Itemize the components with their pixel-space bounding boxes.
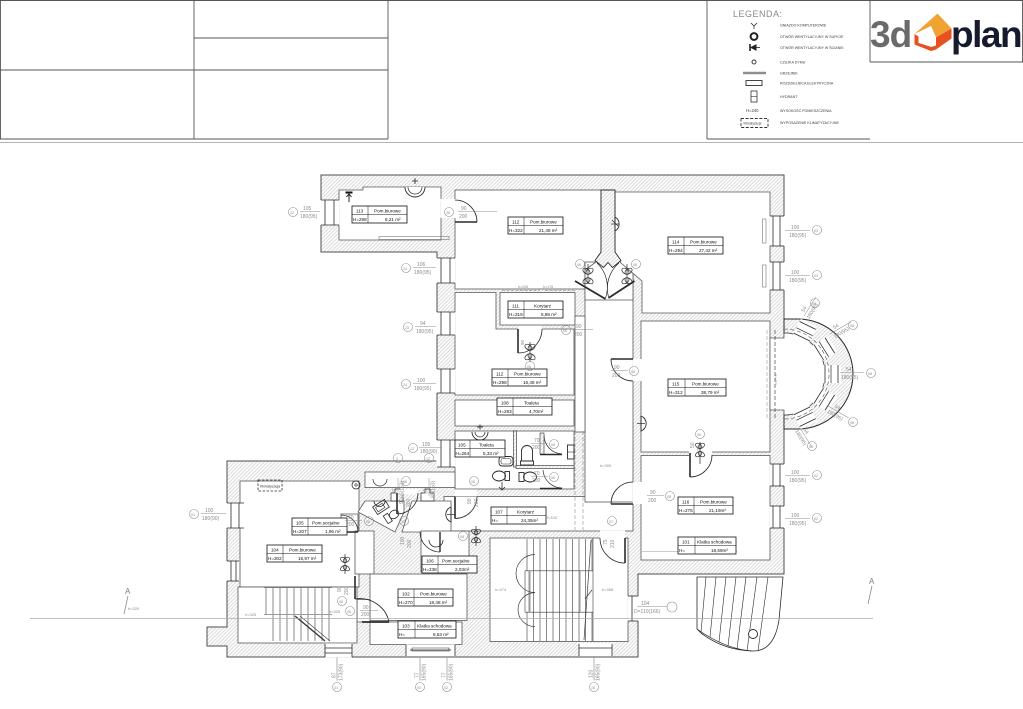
svg-text:GRZEJNIK: GRZEJNIK [780,72,798,76]
svg-text:H=207: H=207 [293,529,307,534]
svg-text:08: 08 [850,324,854,328]
svg-text:8,53 m²: 8,53 m² [433,632,449,637]
svg-text:180(95): 180(95) [789,233,807,239]
svg-text:Pom.socjalne: Pom.socjalne [312,520,340,525]
svg-text:101: 101 [682,539,690,544]
svg-text:200: 200 [612,373,621,379]
svg-text:h=305: h=305 [600,463,612,468]
svg-text:90: 90 [650,490,656,496]
svg-text:90: 90 [337,586,343,592]
svg-text:70: 70 [534,471,540,477]
svg-text:Pom.biurowe: Pom.biurowe [530,219,557,224]
svg-text:Korytarz: Korytarz [534,303,552,308]
svg-text:Pom.biurowe: Pom.biurowe [692,381,719,386]
svg-text:180(90): 180(90) [420,449,438,455]
svg-text:06: 06 [551,476,555,480]
svg-text:H=238: H=238 [423,567,437,572]
svg-text:180(95): 180(95) [414,386,432,392]
svg-text:H=293: H=293 [498,409,512,414]
svg-text:08: 08 [868,372,872,376]
svg-text:94: 94 [420,321,426,327]
svg-text:Klatka schodowa: Klatka schodowa [417,623,452,628]
svg-text:105: 105 [422,442,431,448]
svg-text:18,48 m²: 18,48 m² [429,600,448,605]
svg-text:H=322: H=322 [509,228,523,233]
svg-text:H=294: H=294 [669,248,683,253]
svg-text:200: 200 [361,612,370,618]
svg-text:180(95): 180(95) [789,521,807,527]
svg-text:08: 08 [347,610,351,614]
svg-text:12: 12 [426,457,430,461]
svg-text:180(90): 180(90) [202,516,220,522]
svg-text:120: 120 [589,669,595,678]
svg-text:200: 200 [406,498,412,507]
svg-text:113: 113 [356,208,364,213]
svg-text:Pom.socjalne: Pom.socjalne [442,558,470,563]
svg-text:02: 02 [814,517,818,521]
svg-text:07: 07 [609,520,613,524]
svg-text:106: 106 [426,558,434,563]
svg-text:Klatka schodowa: Klatka schodowa [697,539,732,544]
svg-text:h=325: h=325 [245,612,257,617]
svg-text:200: 200 [459,214,468,220]
svg-text:108: 108 [501,400,509,405]
svg-text:85(153): 85(153) [431,480,437,498]
svg-text:100: 100 [400,536,406,545]
svg-text:180(95): 180(95) [300,214,318,220]
svg-text:23: 23 [405,326,409,330]
svg-text:200: 200 [574,332,583,338]
svg-text:H=333: H=333 [545,515,558,520]
svg-text:103: 103 [402,623,410,628]
svg-text:100: 100 [791,225,800,231]
svg-text:200: 200 [407,539,413,548]
svg-text:h=178: h=178 [543,285,553,289]
svg-text:90: 90 [467,498,473,504]
svg-text:08: 08 [667,495,671,499]
svg-text:H=312: H=312 [669,390,683,395]
svg-text:Pom.biurowe: Pom.biurowe [374,208,401,213]
svg-text:165(90): 165(90) [449,663,455,681]
svg-text:112: 112 [496,371,504,376]
svg-text:WYSOKOŚĆ POMIESZCZENIA: WYSOKOŚĆ POMIESZCZENIA [780,108,832,113]
svg-text:Pom.biurowe: Pom.biurowe [514,371,541,376]
svg-text:90: 90 [520,339,525,345]
svg-text:104: 104 [271,547,279,552]
svg-text:06: 06 [527,365,531,369]
svg-text:105: 105 [296,520,304,525]
svg-text:102: 102 [402,591,410,596]
svg-text:112: 112 [512,219,520,224]
svg-text:24: 24 [403,383,407,387]
svg-text:16,48 m²: 16,48 m² [523,380,542,385]
svg-text:03: 03 [417,686,421,690]
svg-text:A: A [869,577,875,586]
svg-text:LEGENDA:: LEGENDA: [733,9,783,19]
svg-text:GNIAZDO KOMPUTEROWE: GNIAZDO KOMPUTEROWE [780,24,827,28]
svg-text:Pom.biurowe: Pom.biurowe [700,499,727,504]
svg-text:114: 114 [672,239,680,244]
svg-text:31: 31 [334,686,338,690]
svg-text:100: 100 [205,508,214,514]
svg-text:3d: 3d [870,14,911,55]
svg-text:104: 104 [641,601,650,607]
svg-text:2,03m²: 2,03m² [455,567,470,572]
svg-text:h=320: h=320 [128,606,140,611]
svg-text:Pom.biurowe: Pom.biurowe [420,591,447,596]
svg-text:200: 200 [344,586,350,595]
svg-text:100: 100 [791,470,800,476]
svg-text:90: 90 [399,498,405,504]
svg-text:5,33 m²: 5,33 m² [483,451,499,456]
svg-text:Korytarz: Korytarz [517,509,535,514]
svg-text:111: 111 [512,303,519,308]
svg-text:Toaleta: Toaleta [479,442,494,447]
svg-text:200: 200 [648,498,657,504]
svg-text:37: 37 [393,488,399,494]
svg-text:ROZDZIELNICA ELEKTRYCZNA: ROZDZIELNICA ELEKTRYCZNA [780,82,834,86]
svg-text:180(95): 180(95) [789,278,807,284]
svg-text:08: 08 [850,421,854,425]
svg-text:70: 70 [534,438,540,444]
svg-text:4,70m²: 4,70m² [529,409,544,414]
svg-text:08: 08 [633,263,637,267]
svg-text:210: 210 [610,539,616,548]
svg-text:h=P+H: h=P+H [774,373,778,385]
svg-text:H=298: H=298 [353,217,367,222]
svg-text:Pom.biurowe: Pom.biurowe [289,547,316,552]
svg-text:24,35m²: 24,35m² [521,518,538,523]
svg-text:180(95): 180(95) [416,329,434,335]
svg-text:03: 03 [814,274,818,278]
svg-text:D=110(166): D=110(166) [634,609,661,615]
svg-text:90: 90 [461,206,467,212]
svg-text:plan: plan [951,14,1021,55]
svg-text:06: 06 [563,329,567,333]
svg-text:70: 70 [697,445,703,451]
svg-text:b=208: b=208 [518,285,528,289]
svg-text:77: 77 [442,672,448,678]
svg-text:180(95): 180(95) [789,478,807,484]
svg-text:165(90): 165(90) [596,663,602,681]
svg-text:OTWÓR WENTYLACYJNY W SUFICIE: OTWÓR WENTYLACYJNY W SUFICIE [780,34,844,39]
svg-text:OTWÓR WENTYLACYJNY W ŚCIANIE: OTWÓR WENTYLACYJNY W ŚCIANIE [780,45,844,50]
svg-text:08: 08 [339,600,343,604]
svg-text:21,48 m²: 21,48 m² [539,228,558,233]
svg-text:107: 107 [495,509,503,514]
svg-text:54: 54 [846,367,852,373]
svg-text:21,19m²: 21,19m² [709,508,726,513]
svg-text:06: 06 [697,433,701,437]
svg-text:A: A [125,587,131,596]
svg-text:01: 01 [191,513,195,517]
svg-text:H=: H= [492,518,498,523]
svg-text:90: 90 [363,605,369,611]
svg-text:02: 02 [814,474,818,478]
svg-text:200: 200 [532,445,541,451]
svg-text:12: 12 [410,447,414,451]
svg-text:18,69m²: 18,69m² [711,548,728,553]
svg-text:87: 87 [332,672,338,678]
svg-text:27,42 m²: 27,42 m² [699,248,718,253]
svg-text:08: 08 [809,445,813,449]
svg-text:115: 115 [672,381,680,386]
svg-text:06: 06 [551,443,555,447]
svg-text:h=358: h=358 [602,587,614,592]
svg-text:77: 77 [415,672,421,678]
svg-text:105: 105 [303,206,312,212]
svg-text:33: 33 [401,520,405,524]
svg-text:100: 100 [791,513,800,519]
svg-text:24: 24 [403,267,407,271]
svg-text:H=: H= [399,632,405,637]
svg-text:165(90): 165(90) [422,663,428,681]
svg-text:173(90): 173(90) [339,663,345,681]
svg-text:1,96 m²: 1,96 m² [325,529,341,534]
svg-text:5,88 m²: 5,88 m² [541,312,557,317]
svg-text:HYDRANT: HYDRANT [780,95,798,99]
svg-text:3: 3 [396,457,398,461]
svg-text:06: 06 [577,263,581,267]
svg-text:200: 200 [474,498,480,507]
svg-text:116: 116 [682,499,690,504]
svg-text:h=325: h=325 [329,609,341,614]
svg-text:85(153): 85(153) [400,480,406,498]
svg-text:08: 08 [812,302,816,306]
svg-text:Klimatyzacja: Klimatyzacja [260,485,280,489]
svg-text:16: 16 [591,686,595,690]
svg-text:08: 08 [631,370,635,374]
svg-text:50: 50 [690,442,696,448]
svg-text:H=275: H=275 [679,508,693,513]
svg-text:8,21 m²: 8,21 m² [385,217,401,222]
svg-text:200: 200 [346,522,355,528]
svg-text:75: 75 [603,539,609,545]
svg-text:H=264: H=264 [456,451,470,456]
svg-text:H=298: H=298 [493,380,507,385]
svg-text:36: 36 [446,211,450,215]
svg-text:12: 12 [290,211,294,215]
svg-text:h=474: h=474 [495,587,507,592]
svg-text:H=240: H=240 [746,108,759,113]
svg-text:180(95): 180(95) [414,270,432,276]
svg-text:Pom.biurowe: Pom.biurowe [690,239,717,244]
svg-text:100: 100 [417,378,426,384]
svg-text:106: 106 [417,262,426,268]
svg-text:105: 105 [458,442,466,447]
svg-text:H=: H= [679,548,685,553]
svg-text:CZUJKA DYMU: CZUJKA DYMU [780,61,806,65]
svg-text:06: 06 [366,520,370,524]
svg-text:100: 100 [791,270,800,276]
svg-text:200: 200 [532,478,541,484]
svg-text:90: 90 [576,324,582,330]
svg-text:WYPOSAŻENIE KLIMATYZACYJNE: WYPOSAŻENIE KLIMATYZACYJNE [780,120,839,125]
svg-text:02: 02 [444,686,448,690]
svg-text:Klimatyzacja: Klimatyzacja [744,122,762,126]
svg-text:H=270: H=270 [399,600,413,605]
svg-text:90: 90 [614,365,620,371]
svg-text:03: 03 [814,229,818,233]
svg-text:16,97 m²: 16,97 m² [298,556,317,561]
svg-text:70: 70 [348,515,354,521]
svg-text:180(95): 180(95) [841,375,859,381]
svg-text:08: 08 [460,535,464,539]
svg-text:H=319: H=319 [509,312,523,317]
svg-text:37: 37 [424,488,430,494]
svg-text:38,79 m²: 38,79 m² [701,390,720,395]
svg-text:06: 06 [471,480,475,484]
svg-text:Toaleta: Toaleta [524,400,539,405]
svg-text:H=302: H=302 [268,556,282,561]
